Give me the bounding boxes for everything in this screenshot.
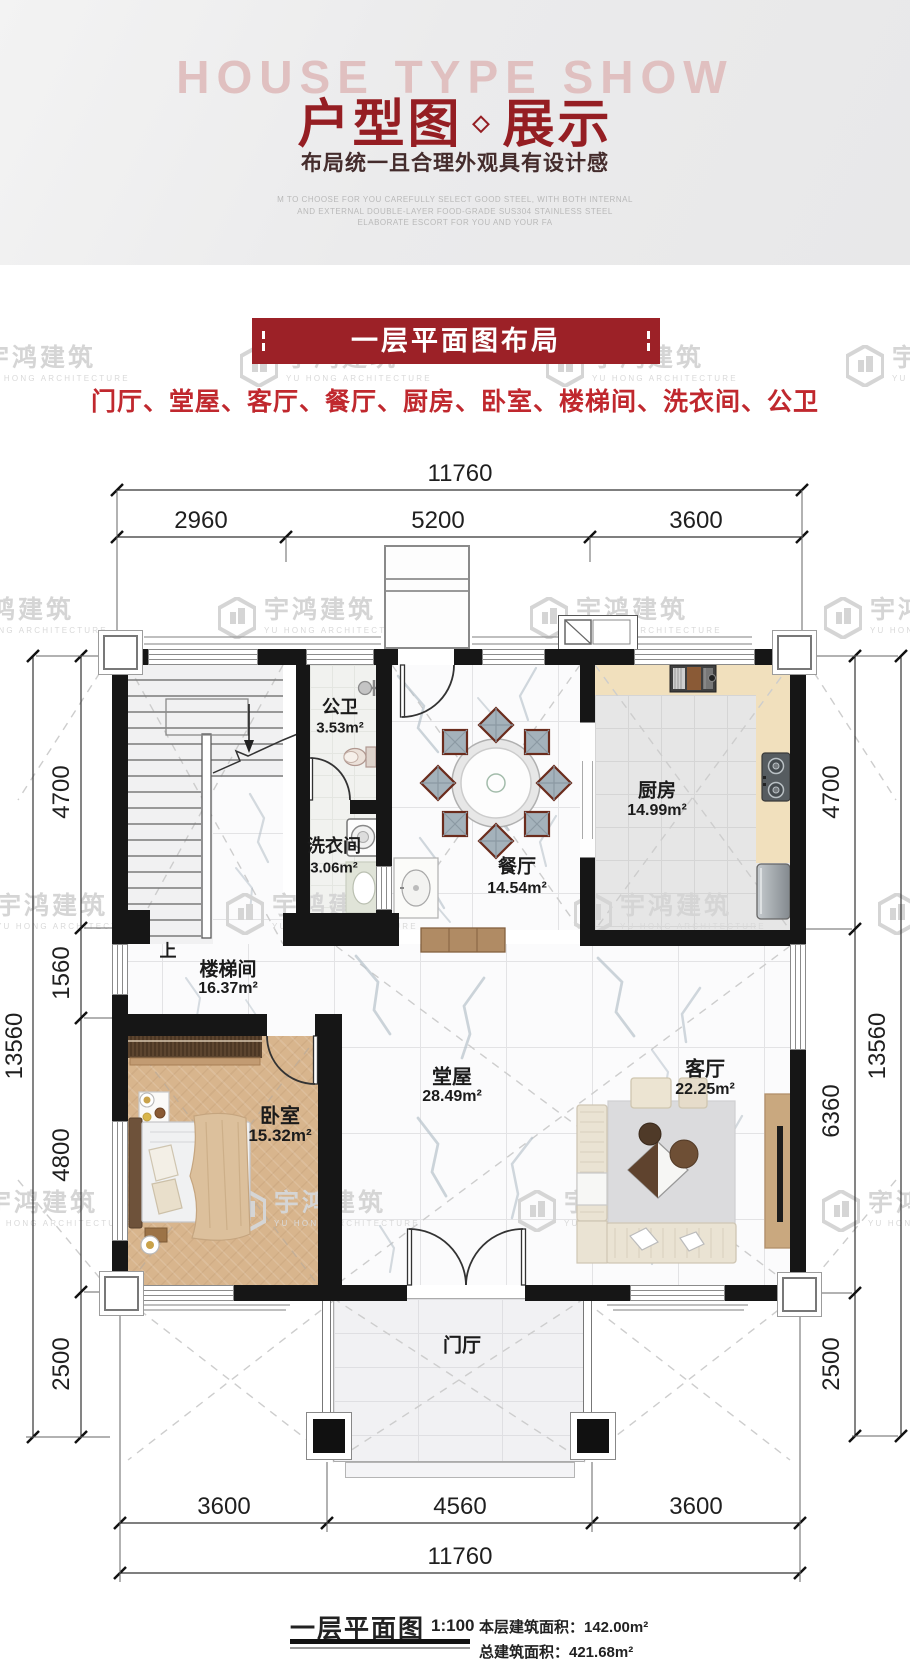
svg-text:1560: 1560 — [48, 946, 75, 999]
svg-text:13560: 13560 — [864, 1013, 891, 1080]
svg-text:2500: 2500 — [818, 1337, 845, 1390]
svg-text:6360: 6360 — [818, 1084, 845, 1137]
svg-text:4700: 4700 — [818, 765, 845, 818]
svg-text:2500: 2500 — [48, 1337, 75, 1390]
svg-text:5200: 5200 — [411, 507, 464, 534]
svg-text:4700: 4700 — [48, 765, 75, 818]
svg-text:3600: 3600 — [197, 1493, 250, 1520]
svg-text:11760: 11760 — [428, 460, 493, 487]
svg-text:11760: 11760 — [428, 1543, 493, 1570]
svg-text:4560: 4560 — [433, 1493, 486, 1520]
svg-text:2960: 2960 — [174, 507, 227, 534]
svg-text:3600: 3600 — [669, 1493, 722, 1520]
svg-text:13560: 13560 — [1, 1013, 28, 1080]
svg-text:4800: 4800 — [48, 1128, 75, 1181]
svg-text:3600: 3600 — [669, 507, 722, 534]
